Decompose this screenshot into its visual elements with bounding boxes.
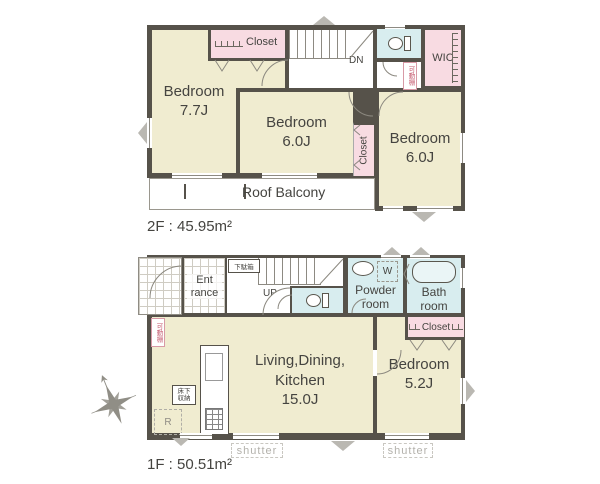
f2-adjustable-shelf: 可動棚	[403, 62, 417, 90]
stove-icon	[205, 408, 223, 430]
f1-area-label: 1F : 50.51m²	[147, 456, 232, 473]
bath-line2: room	[420, 299, 447, 313]
hanger-rod-icon	[452, 324, 463, 330]
entrance-line2: rance	[191, 287, 219, 299]
direction-arrow-icon	[138, 122, 147, 144]
f2-bedroom3-size: 6.0J	[406, 149, 434, 166]
sink-icon	[352, 261, 374, 276]
direction-arrow-icon	[412, 247, 430, 255]
f2-bedroom-6-0-right: Bedroom 6.0J	[379, 92, 461, 206]
window	[381, 255, 401, 259]
powder-line1: Powder	[355, 283, 396, 297]
hanger-rod-icon	[452, 33, 458, 83]
f2-bedroom2-size: 6.0J	[282, 133, 310, 150]
f1-bedroom-size: 5.2J	[405, 375, 433, 392]
f1-bath-label: Bath room	[407, 286, 461, 314]
direction-arrow-icon	[466, 380, 475, 402]
f1-stairs-up	[258, 258, 321, 285]
f1-bedroom-name: Bedroom	[389, 356, 450, 373]
window	[172, 173, 222, 178]
washer-box: W	[377, 261, 398, 282]
f2-bedroom1-name: Bedroom	[164, 83, 225, 100]
powder-line2: room	[362, 297, 389, 311]
f1-adjustable-shelf: 可動棚	[151, 318, 165, 347]
window	[460, 378, 465, 404]
f2-bedroom2-name: Bedroom	[266, 114, 327, 131]
f1-powder-label: Powder room	[348, 284, 403, 312]
floor-storage-line1: 床下	[178, 388, 191, 395]
door-opening	[373, 350, 377, 376]
f2-bedroom3-name: Bedroom	[390, 130, 451, 147]
direction-arrow-icon	[313, 16, 335, 25]
ldk-line1: Living,Dining,	[255, 352, 345, 369]
window	[385, 433, 429, 439]
direction-arrow-icon	[172, 438, 190, 446]
f1-entrance-label: Ent rance	[187, 274, 222, 299]
bath-line1: Bath	[422, 285, 447, 299]
window	[262, 173, 317, 178]
direction-arrow-icon	[331, 441, 355, 451]
direction-arrow-icon	[412, 212, 436, 222]
ldk-size: 15.0J	[282, 391, 319, 408]
roof-balcony: Roof Balcony	[149, 178, 375, 210]
shutter-label: shutter	[383, 443, 433, 458]
f1-shoe-cabinet: 下駄箱	[228, 259, 260, 273]
f1-stairs-up-label: UP	[263, 288, 277, 300]
window	[410, 255, 430, 259]
window	[147, 118, 152, 148]
window	[460, 133, 465, 163]
entrance-line1: Ent	[196, 274, 213, 286]
f1-toilet-room	[292, 288, 343, 313]
f2-closet-side-label: Closet	[359, 136, 370, 164]
floor-storage-box: 床下 収納	[172, 385, 196, 405]
toilet-icon	[388, 36, 411, 51]
f1-hall-lower	[227, 286, 290, 313]
floor-plan-canvas: Roof Balcony Bedroom 7.7J Closet DN Bedr…	[0, 0, 600, 484]
f2-bedroom1-size: 7.7J	[180, 102, 208, 119]
roof-balcony-label: Roof Balcony	[242, 184, 325, 200]
f1-ldk-label: Living,Dining, Kitchen 15.0J	[230, 351, 370, 410]
f2-closet-label: Closet	[246, 36, 277, 49]
f2-stairs-dn-label: DN	[349, 55, 363, 67]
f2-bedroom-6-0-middle: Bedroom 6.0J	[240, 92, 353, 173]
window	[233, 433, 279, 439]
f2-closet-side: Closet	[353, 122, 374, 176]
window	[460, 268, 465, 288]
f2-wic-label: WIC	[432, 52, 453, 64]
floor-storage-line2: 収納	[178, 395, 191, 402]
f1-closet-label: Closet	[422, 322, 450, 333]
direction-arrow-icon	[383, 247, 401, 255]
f2-toilet-room	[377, 29, 421, 58]
window	[417, 206, 453, 211]
f1-porch	[138, 257, 182, 315]
f1-entrance: Ent rance	[184, 258, 225, 313]
f2-bedroom-7-7-extension	[236, 58, 285, 88]
balcony-rail-tick	[184, 184, 186, 199]
f2-stairs-down	[289, 30, 351, 59]
fridge-box: R	[154, 409, 182, 435]
f1-closet: Closet	[405, 317, 464, 340]
kitchen-sink-icon	[205, 353, 223, 381]
hanger-rod-icon	[409, 324, 420, 330]
compass-icon	[79, 365, 144, 435]
bathtub-icon	[412, 261, 456, 283]
f2-closet: Closet	[208, 30, 288, 61]
window	[383, 206, 403, 211]
hanger-rod-icon	[215, 41, 243, 47]
ldk-line2: Kitchen	[275, 372, 325, 389]
toilet-icon	[306, 293, 329, 308]
window	[385, 25, 405, 29]
f2-area-label: 2F : 45.95m²	[147, 218, 232, 235]
shutter-label: shutter	[231, 443, 283, 458]
